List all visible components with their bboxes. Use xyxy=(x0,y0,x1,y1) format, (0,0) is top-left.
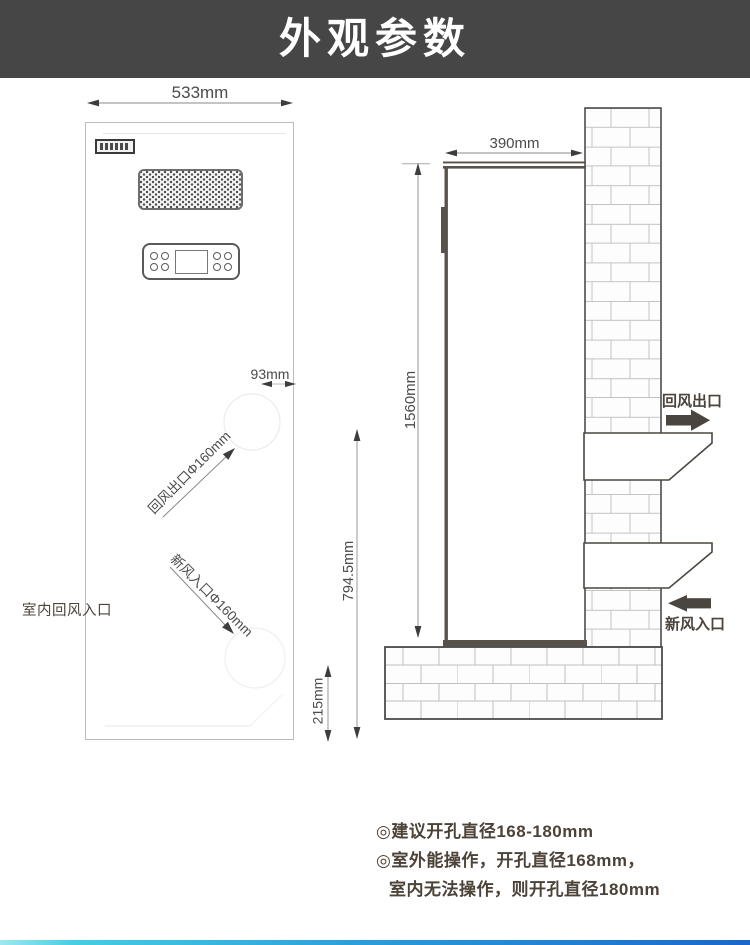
dim-arrow xyxy=(325,665,332,677)
note-line-1: ◎建议开孔直径168-180mm xyxy=(376,817,593,842)
dim-arrow xyxy=(325,730,332,742)
brand-logo-icon xyxy=(95,139,135,154)
fresh-air-duct xyxy=(584,543,712,588)
dim-label-794: 794.5mm xyxy=(341,535,357,607)
dim-label-533: 533mm xyxy=(140,83,260,103)
dim-label-215: 215mm xyxy=(310,666,326,737)
panel-buttons-left xyxy=(150,252,169,271)
indoor-return-inlet-label: 室内回风入口 xyxy=(22,599,112,620)
panel-buttons-right xyxy=(213,252,232,271)
return-air-outlet-label: 回风出口 xyxy=(662,390,747,411)
header-banner: 外观参数 xyxy=(0,0,750,78)
fresh-air-inlet-label: 新风入口 xyxy=(665,613,750,634)
dim-arrow xyxy=(571,150,583,157)
air-grille xyxy=(138,169,243,210)
page-title: 外观参数 xyxy=(0,0,750,78)
dim-arrow xyxy=(415,626,422,638)
panel-display xyxy=(175,250,208,274)
note-line-2: ◎室外能操作，开孔直径168mm， xyxy=(376,846,645,871)
panel-button xyxy=(224,263,232,271)
dim-arrow xyxy=(87,100,99,107)
dim-label-93: 93mm xyxy=(240,366,300,382)
panel-button xyxy=(161,263,169,271)
panel-button xyxy=(150,263,158,271)
dim-arrow xyxy=(354,727,361,739)
unit-side-tab xyxy=(441,207,445,253)
panel-button xyxy=(213,263,221,271)
dim-arrow xyxy=(354,429,361,441)
unit-top-line-2 xyxy=(443,166,586,169)
dim-arrow xyxy=(281,100,293,107)
panel-button xyxy=(161,252,169,260)
front-view-top-seam xyxy=(103,133,285,134)
dim-label-390: 390mm xyxy=(462,135,567,152)
spec-sheet: 外观参数 xyxy=(0,0,750,945)
unit-top-line xyxy=(443,162,586,164)
panel-button xyxy=(224,252,232,260)
note-line-3: 室内无法操作，则开孔直径180mm xyxy=(389,875,660,900)
panel-button xyxy=(213,252,221,260)
side-view-drawing xyxy=(310,95,720,755)
dim-arrow xyxy=(415,163,422,175)
panel-button xyxy=(150,252,158,260)
return-air-duct xyxy=(584,433,712,480)
bottom-accent-strip xyxy=(0,940,750,945)
dim-arrow xyxy=(445,150,457,157)
wall-column xyxy=(585,108,661,647)
return-air-flow-arrow xyxy=(666,410,710,431)
base-platform xyxy=(385,647,662,719)
control-panel xyxy=(142,243,240,280)
unit-left-edge xyxy=(445,168,448,642)
unit-bottom-edge xyxy=(443,640,587,647)
fresh-air-flow-arrow xyxy=(668,595,711,612)
dim-label-1560: 1560mm xyxy=(402,364,418,436)
